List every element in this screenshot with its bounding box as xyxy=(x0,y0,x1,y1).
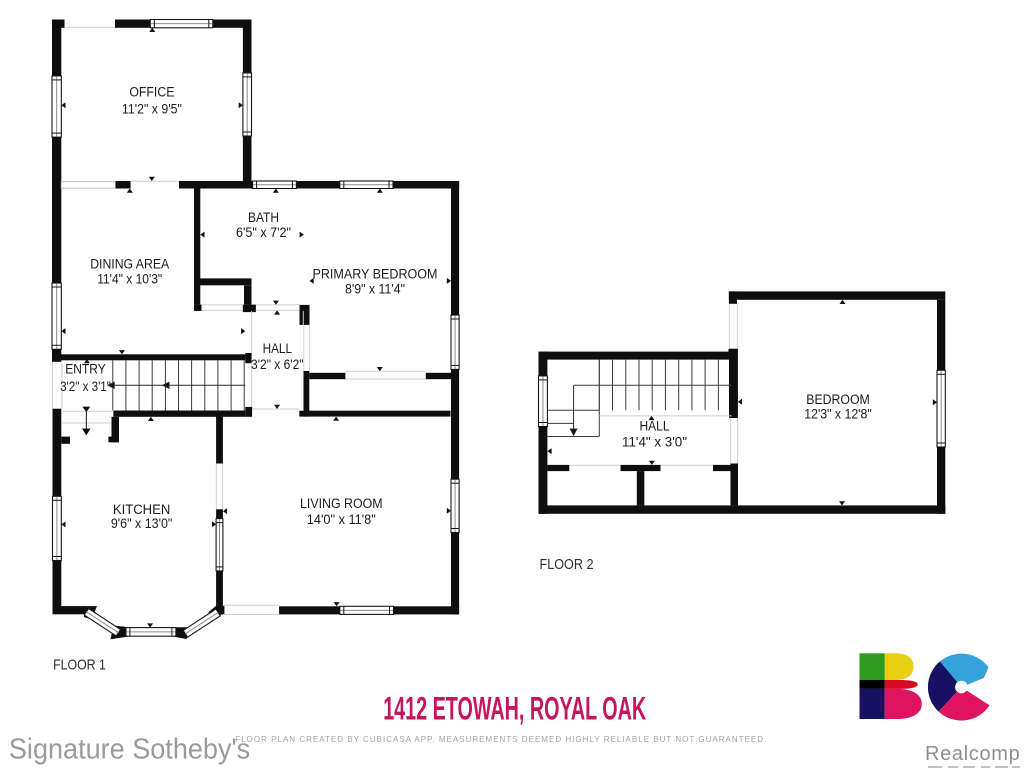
svg-text:HALL: HALL xyxy=(640,418,670,434)
svg-text:OFFICE: OFFICE xyxy=(129,84,174,100)
svg-text:Signature Sotheby's: Signature Sotheby's xyxy=(9,733,250,765)
svg-text:11'2" x 9'5": 11'2" x 9'5" xyxy=(122,101,182,117)
svg-text:PRIMARY BEDROOM: PRIMARY BEDROOM xyxy=(313,266,438,282)
svg-text:LIVING ROOM: LIVING ROOM xyxy=(300,496,383,512)
svg-text:3'2" x 6'2": 3'2" x 6'2" xyxy=(251,357,304,373)
svg-text:FLOOR 2: FLOOR 2 xyxy=(540,556,594,573)
svg-text:1412 ETOWAH, ROYAL OAK: 1412 ETOWAH, ROYAL OAK xyxy=(383,690,646,726)
svg-text:FLOOR 1: FLOOR 1 xyxy=(53,656,106,673)
svg-text:8'9" x 11'4": 8'9" x 11'4" xyxy=(345,281,405,297)
svg-text:9'6" x 13'0": 9'6" x 13'0" xyxy=(111,516,173,532)
svg-text:FLOOR PLAN CREATED BY CUBICASA: FLOOR PLAN CREATED BY CUBICASA APP. MEAS… xyxy=(235,735,766,744)
svg-text:14'0" x 11'8": 14'0" x 11'8" xyxy=(307,512,376,528)
svg-text:Realcomp: Realcomp xyxy=(925,743,1020,765)
svg-text:3'2" x 3'1": 3'2" x 3'1" xyxy=(60,379,111,395)
svg-text:HALL: HALL xyxy=(263,341,292,357)
svg-text:6'5" x 7'2": 6'5" x 7'2" xyxy=(236,225,291,241)
svg-text:11'4" x 3'0": 11'4" x 3'0" xyxy=(622,435,687,451)
svg-text:ENTRY: ENTRY xyxy=(65,362,106,378)
svg-text:DINING AREA: DINING AREA xyxy=(90,256,169,272)
svg-text:12'3" x 12'8": 12'3" x 12'8" xyxy=(804,407,872,423)
svg-text:BATH: BATH xyxy=(248,210,279,226)
svg-text:11'4" x 10'3": 11'4" x 10'3" xyxy=(97,271,162,287)
